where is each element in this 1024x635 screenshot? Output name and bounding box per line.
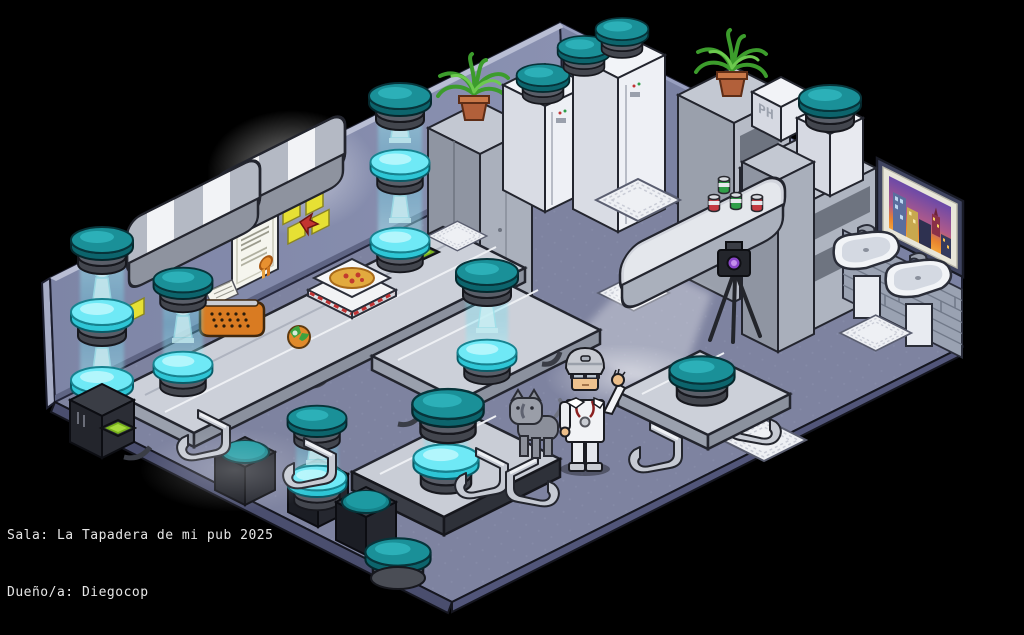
holo-stool-tower[interactable]	[369, 83, 431, 272]
teal-bar-stool[interactable]	[517, 64, 570, 104]
cash-register[interactable]	[70, 384, 135, 458]
soda-can[interactable]	[709, 195, 720, 212]
soda-can[interactable]	[752, 195, 763, 212]
soda-can[interactable]	[719, 177, 730, 194]
game-viewport: PH	[0, 0, 1024, 635]
room-info-overlay: Sala: La Tapadera de mi pub 2025 Dueño/a…	[7, 488, 273, 621]
room-name-label: Sala: La Tapadera de mi pub 2025	[7, 526, 273, 545]
teal-bar-stool[interactable]	[596, 18, 649, 58]
teal-bar-stool[interactable]	[669, 356, 734, 405]
toy-ball[interactable]	[288, 326, 310, 348]
teal-bar-stool[interactable]	[799, 85, 861, 132]
teal-bar-stool[interactable]	[365, 538, 430, 589]
room-owner-label: Dueño/a: Diegocop	[7, 583, 273, 602]
soda-can[interactable]	[731, 193, 742, 210]
